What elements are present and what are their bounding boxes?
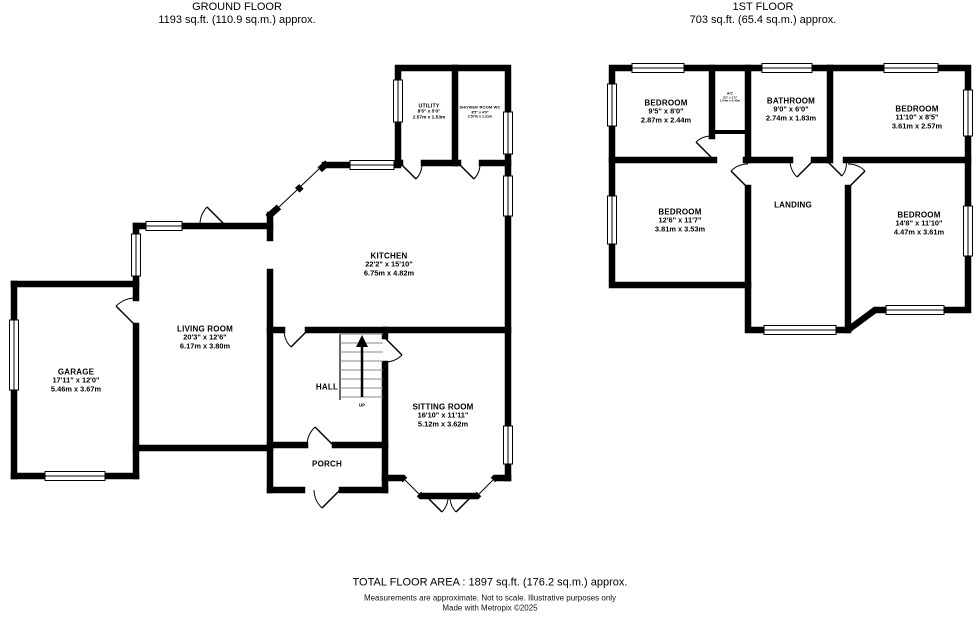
room-label-kitchen: KITCHEN 22'2" x 15'10" 6.75m x 4.82m bbox=[364, 252, 414, 279]
room-label-porch: PORCH bbox=[312, 459, 342, 468]
door bbox=[790, 160, 814, 177]
door bbox=[731, 164, 748, 188]
window bbox=[479, 480, 493, 494]
floorplan-drawing bbox=[0, 0, 980, 618]
stairs-up-label: UP bbox=[359, 402, 365, 407]
disclaimer-text: Measurements are approximate. Not to sca… bbox=[364, 593, 616, 602]
window bbox=[608, 196, 617, 244]
floor-title-text: GROUND FLOOR bbox=[158, 1, 315, 14]
first-floor-title: 1ST FLOOR 703 sq.ft. (65.4 sq.m.) approx… bbox=[690, 1, 837, 27]
room-label-garage: GARAGE 17'11" x 12'0" 5.46m x 3.67m bbox=[51, 368, 101, 395]
room-label-bathroom: BATHROOM 9'0" x 6'0" 2.74m x 1.83m bbox=[766, 97, 816, 124]
ground-floor-title: GROUND FLOOR 1193 sq.ft. (110.9 sq.m.) a… bbox=[158, 1, 315, 27]
door bbox=[314, 490, 340, 508]
floor-area-text: 703 sq.ft. (65.4 sq.m.) approx. bbox=[690, 14, 837, 27]
room-label-living-room: LIVING ROOM 20'3" x 12'6" 6.17m x 3.80m bbox=[177, 325, 233, 352]
door bbox=[848, 164, 865, 188]
window bbox=[762, 64, 812, 73]
window bbox=[394, 80, 403, 122]
window bbox=[350, 161, 394, 170]
door bbox=[307, 427, 333, 445]
room-label-bedroom-4: BEDROOM 14'8" x 11'10" 4.47m x 3.61m bbox=[894, 211, 944, 238]
window bbox=[884, 64, 938, 73]
door bbox=[116, 298, 136, 326]
window bbox=[45, 472, 105, 481]
door bbox=[400, 163, 422, 179]
total-floor-area: TOTAL FLOOR AREA : 1897 sq.ft. (176.2 sq… bbox=[353, 577, 628, 590]
window bbox=[886, 306, 944, 315]
window bbox=[146, 222, 182, 231]
room-label-landing: LANDING bbox=[774, 200, 812, 209]
window bbox=[632, 64, 684, 73]
stairs-icon bbox=[340, 334, 383, 400]
up-arrow-icon bbox=[356, 335, 368, 347]
window bbox=[301, 169, 319, 186]
floor-area-text: 1193 sq.ft. (110.9 sq.m.) approx. bbox=[158, 14, 315, 27]
floorplan-page: GROUND FLOOR 1193 sq.ft. (110.9 sq.m.) a… bbox=[0, 0, 980, 618]
room-label-bedroom-3: BEDROOM 12'6" x 11'7" 3.81m x 3.53m bbox=[655, 208, 705, 235]
room-label-hall: HALL bbox=[316, 382, 338, 391]
window bbox=[10, 320, 19, 390]
room-label-airing-cupboard: A/C 3'5" x 1'5" 1.04m x 0.43m bbox=[720, 93, 740, 104]
door bbox=[458, 163, 480, 179]
door bbox=[385, 338, 402, 362]
window bbox=[279, 190, 297, 207]
window bbox=[608, 84, 617, 126]
ground-floor-walls bbox=[14, 68, 508, 496]
door bbox=[696, 136, 712, 158]
room-label-bedroom-2: BEDROOM 11'10" x 8'5" 3.61m x 2.57m bbox=[892, 105, 942, 132]
window bbox=[964, 206, 973, 256]
credit-text: Made with Metropix ©2025 bbox=[442, 603, 537, 612]
floor-title-text: 1ST FLOOR bbox=[690, 1, 837, 14]
window bbox=[504, 176, 513, 216]
window bbox=[132, 234, 141, 276]
room-label-utility: UTILITY 8'5" x 5'0" 2.57m x 1.53m bbox=[413, 103, 446, 120]
door bbox=[284, 330, 308, 347]
room-label-sitting-room: SITTING ROOM 16'10" x 11'11" 5.12m x 3.6… bbox=[412, 403, 473, 430]
window bbox=[405, 480, 419, 494]
window bbox=[504, 112, 513, 154]
window bbox=[504, 426, 513, 464]
room-label-shower-room: SHOWER ROOM WC 8'5" x 4'0" 2.57m x 1.21m bbox=[459, 105, 500, 118]
window bbox=[964, 90, 973, 136]
window bbox=[764, 326, 836, 335]
room-label-bedroom-1: BEDROOM 9'5" x 8'0" 2.87m x 2.44m bbox=[641, 99, 691, 126]
